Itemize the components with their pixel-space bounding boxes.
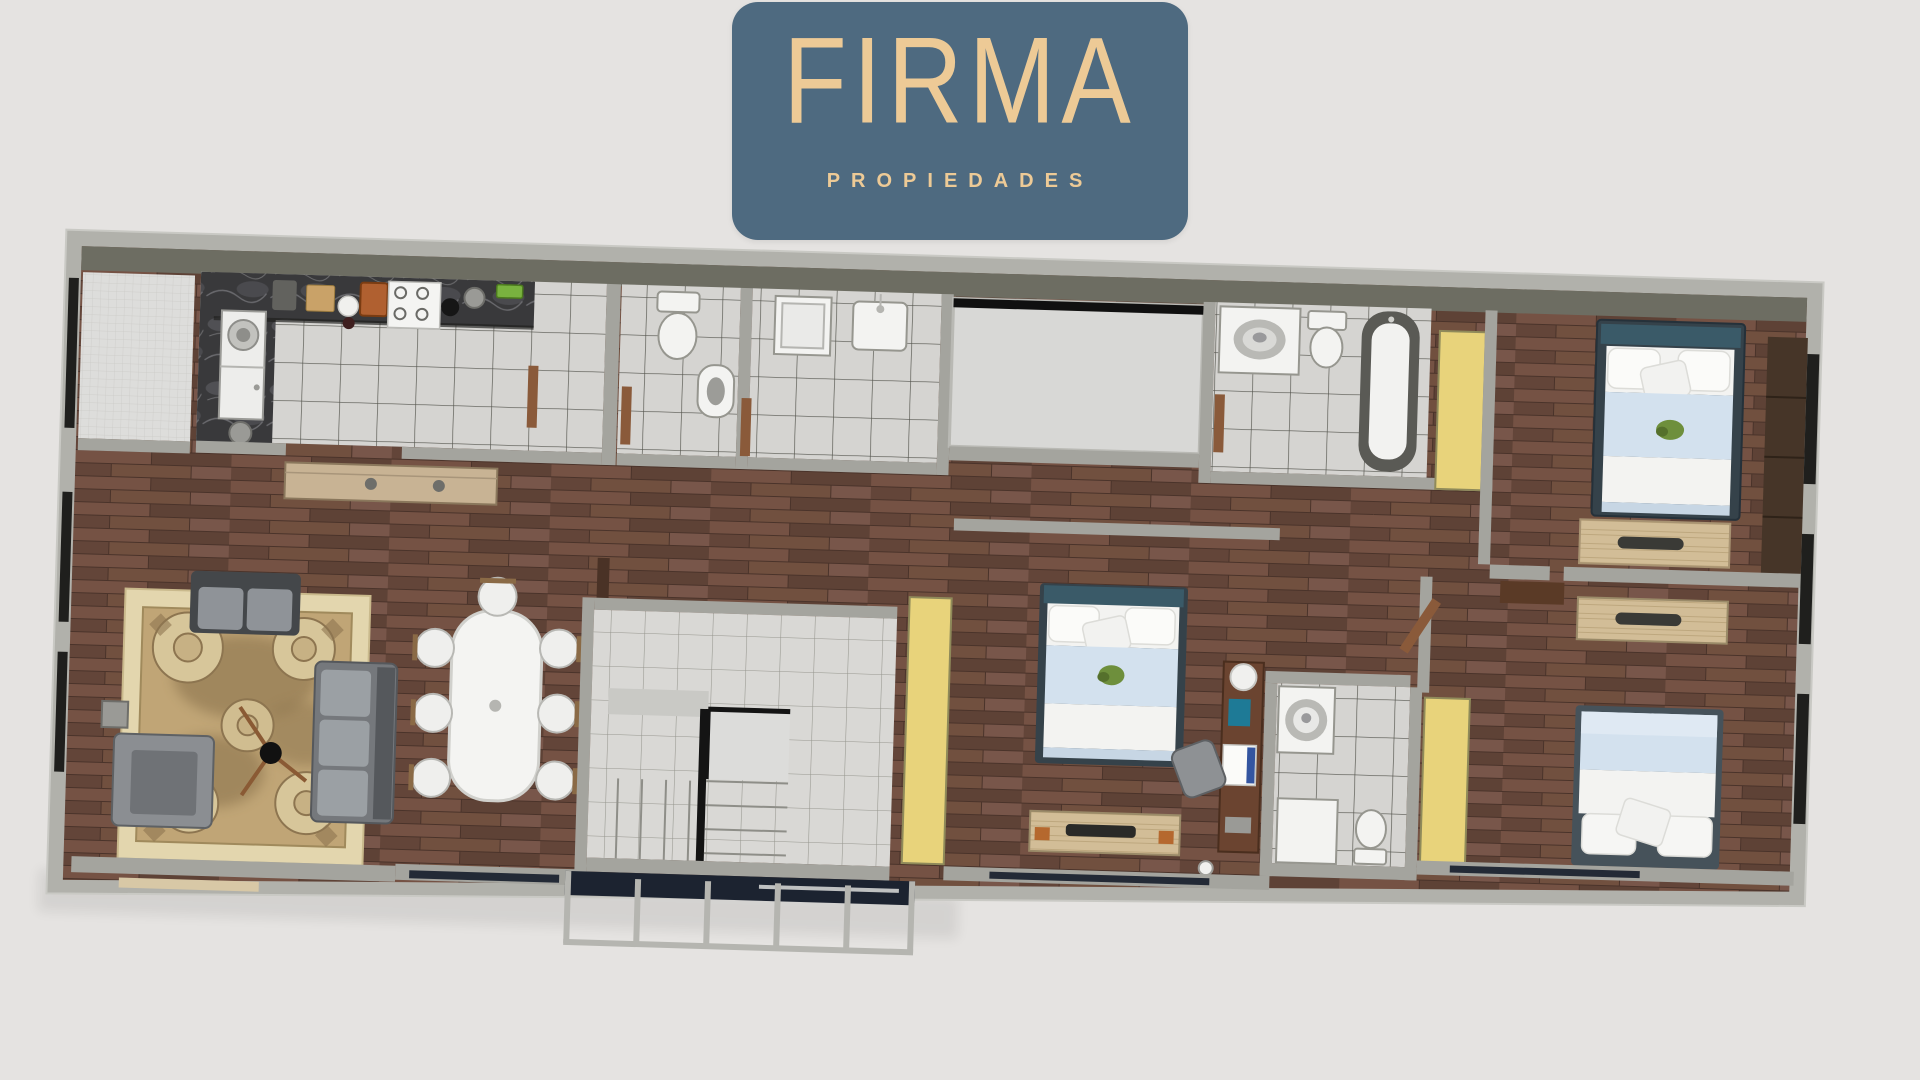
room-bathroom-4: [1260, 671, 1423, 881]
vanity-washbasin: [1219, 306, 1301, 374]
dining-table: [447, 609, 543, 802]
console-table: [1579, 519, 1730, 567]
desk: [1218, 662, 1264, 853]
fridge: [219, 310, 266, 419]
pillow: [1124, 608, 1175, 645]
brand-tagline: PROPIEDADES: [827, 170, 1094, 193]
bathtub: [1358, 311, 1421, 473]
room-kitchen: [196, 272, 607, 465]
building: [37, 229, 1823, 982]
side-table: [101, 701, 128, 728]
armchair: [112, 733, 215, 828]
tray: [360, 283, 388, 317]
washbasin: [852, 293, 908, 351]
loveseat: [189, 571, 301, 636]
open-door-leaf: [1213, 394, 1225, 452]
shower-tray: [774, 296, 832, 356]
bidet: [697, 365, 735, 418]
stair-landing-step: [608, 688, 709, 717]
vanity-washbasin: [1277, 686, 1335, 754]
open-door-leaf: [740, 398, 752, 456]
open-door-leaf: [620, 386, 632, 444]
yellow-door: [902, 597, 952, 864]
room-utility-balcony: [64, 272, 195, 454]
shower-tray: [1276, 798, 1338, 864]
green-board: [497, 285, 523, 299]
knob-decor: [1199, 861, 1213, 875]
open-door-leaf: [527, 366, 539, 428]
toilet: [1354, 810, 1388, 865]
room-bathroom-1: [602, 284, 741, 469]
logo-badge: FIRMA PROPIEDADES: [732, 2, 1188, 240]
double-bed: [1571, 705, 1724, 869]
kitchen-sink: [229, 422, 252, 445]
double-bed: [1591, 320, 1745, 520]
console-table: [1029, 811, 1180, 855]
yellow-door: [1435, 331, 1486, 490]
console-table: [1577, 597, 1728, 643]
room-bathroom-2: [735, 288, 941, 475]
room-stairwell: [586, 598, 897, 881]
sideboard: [284, 462, 497, 504]
double-bed: [1035, 583, 1188, 767]
page: FIRMA PROPIEDADES: [0, 0, 1920, 1080]
room-patio-lightwell: [936, 294, 1215, 483]
yellow-door: [1420, 698, 1470, 869]
stove: [388, 281, 441, 329]
bench: [1500, 581, 1565, 605]
toilet: [656, 291, 700, 359]
wardrobe: [1761, 337, 1808, 578]
sofa: [311, 661, 398, 823]
brand-name: FIRMA: [783, 20, 1137, 143]
